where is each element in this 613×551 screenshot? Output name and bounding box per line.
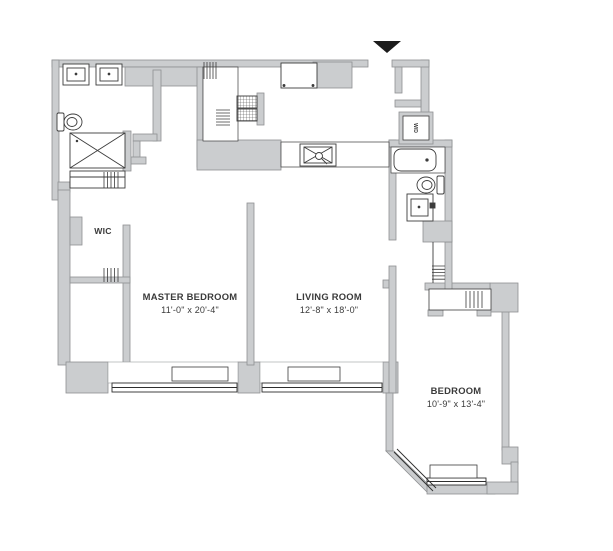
wall-segment xyxy=(247,203,254,365)
master-bedroom-window xyxy=(112,383,237,392)
kitchen-sink-icon xyxy=(300,144,336,166)
wall-segment xyxy=(197,140,281,170)
floor-plan-svg: MASTER BEDROOM 11'-0" x 20'-4" LIVING RO… xyxy=(0,0,613,551)
wall-segment xyxy=(70,217,82,245)
wall-segment xyxy=(313,62,352,88)
wall-segment xyxy=(445,240,452,290)
stove-icon xyxy=(237,96,257,121)
radiator xyxy=(430,465,477,478)
wall-segment xyxy=(502,447,518,464)
wall-segment xyxy=(70,277,130,283)
hatch-marks xyxy=(432,266,445,279)
linen-closet xyxy=(70,171,125,188)
bedroom-dims: 10'-9" x 13'-4" xyxy=(427,399,485,409)
wall-segment xyxy=(428,310,443,316)
entry-arrow-icon xyxy=(373,41,401,53)
wall-segment xyxy=(133,134,157,141)
washer-dryer-label: W/D xyxy=(412,123,418,133)
wall-segment xyxy=(421,60,429,114)
wall-segment xyxy=(427,484,495,494)
wall-segment xyxy=(423,221,452,242)
wall-segment xyxy=(490,283,518,312)
toilet-icon xyxy=(417,176,444,194)
wall-segment xyxy=(395,100,421,107)
wall-segment xyxy=(477,310,491,316)
floor-plan: MASTER BEDROOM 11'-0" x 20'-4" LIVING RO… xyxy=(0,0,613,551)
shower-icon xyxy=(70,133,125,168)
bathtub-icon xyxy=(391,147,445,173)
living-room-window xyxy=(262,383,382,392)
living-room-label: LIVING ROOM xyxy=(296,291,362,302)
vanity-sink-icon xyxy=(96,64,122,85)
toilet-icon xyxy=(57,113,82,131)
wall-segment xyxy=(238,362,260,393)
radiator xyxy=(288,367,340,381)
wall-segment xyxy=(389,266,396,393)
master-bedroom-dims: 11'-0" x 20'-4" xyxy=(161,305,219,315)
wic-label: WIC xyxy=(94,226,112,236)
wall-segment xyxy=(257,93,264,125)
wall-segment xyxy=(392,60,429,67)
wall-segment xyxy=(386,393,393,451)
radiator xyxy=(172,367,228,381)
bedroom-label: BEDROOM xyxy=(431,385,482,396)
wall-segment xyxy=(502,310,509,450)
wall-segment xyxy=(58,190,70,365)
vanity-sink-icon xyxy=(63,64,89,85)
wall-segment xyxy=(383,280,389,288)
vanity-sink-icon xyxy=(407,194,435,221)
walls xyxy=(52,60,518,494)
fixtures xyxy=(57,63,491,478)
master-bedroom-label: MASTER BEDROOM xyxy=(143,291,238,302)
wall-segment xyxy=(66,362,108,393)
wall-segment xyxy=(395,67,402,93)
refrigerator-icon xyxy=(281,63,317,88)
wall-segment xyxy=(487,482,518,494)
wall-segment xyxy=(125,67,200,86)
wall-segment xyxy=(153,70,161,141)
bedroom-window xyxy=(427,478,486,485)
wall-segment xyxy=(123,225,130,365)
living-room-dims: 12'-8" x 18'-0" xyxy=(300,305,358,315)
